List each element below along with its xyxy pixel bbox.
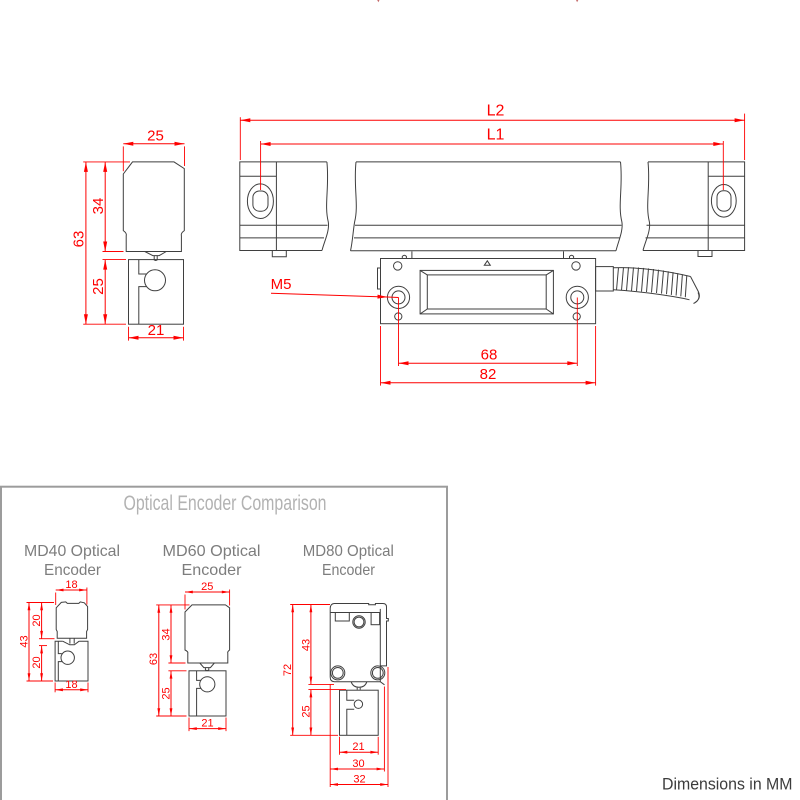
- svg-text:Encoder: Encoder: [182, 562, 243, 579]
- svg-text:63: 63: [148, 653, 160, 665]
- svg-text:18: 18: [65, 579, 77, 591]
- svg-text:L1: L1: [487, 126, 505, 143]
- svg-text:25: 25: [90, 278, 107, 295]
- svg-text:20: 20: [31, 614, 43, 626]
- svg-text:25: 25: [147, 128, 164, 145]
- svg-text:Optical Encoder Comparison: Optical Encoder Comparison: [124, 492, 327, 515]
- svg-text:Encoder: Encoder: [322, 562, 376, 579]
- svg-text:25: 25: [300, 705, 312, 717]
- svg-text:82: 82: [480, 366, 497, 383]
- svg-text:L2: L2: [487, 102, 505, 119]
- svg-text:M5: M5: [271, 276, 292, 293]
- svg-text:25: 25: [160, 687, 172, 699]
- svg-text:34: 34: [160, 628, 172, 640]
- svg-text:21: 21: [201, 718, 213, 730]
- svg-text:MD40 Optical: MD40 Optical: [24, 543, 120, 560]
- svg-text:68: 68: [481, 347, 498, 364]
- svg-text:18: 18: [65, 679, 77, 691]
- svg-text:Encoder: Encoder: [44, 562, 102, 579]
- svg-text:32: 32: [353, 774, 365, 786]
- svg-text:MD60 Optical: MD60 Optical: [163, 543, 261, 560]
- svg-text:Dimensions in MM: Dimensions in MM: [662, 775, 793, 794]
- svg-text:43: 43: [18, 635, 30, 647]
- svg-text:21: 21: [352, 741, 364, 753]
- svg-text:30: 30: [352, 758, 364, 770]
- svg-text:63: 63: [71, 231, 88, 248]
- svg-text:20: 20: [31, 656, 43, 668]
- svg-text:25: 25: [201, 581, 213, 593]
- svg-text:MD80 Optical: MD80 Optical: [303, 543, 394, 560]
- svg-text:43: 43: [300, 639, 312, 651]
- svg-text:34: 34: [90, 198, 107, 215]
- svg-text:21: 21: [148, 322, 165, 339]
- svg-text:72: 72: [282, 664, 294, 676]
